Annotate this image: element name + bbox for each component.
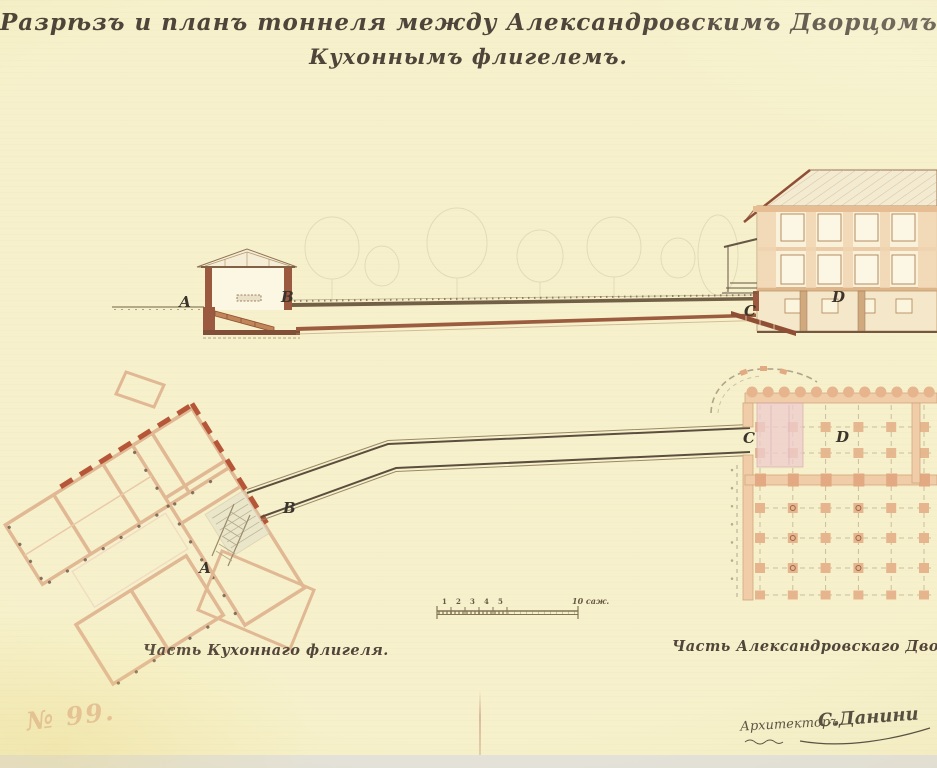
section-label-a: А [179, 293, 191, 311]
tunnel-section [292, 295, 756, 334]
caption-alexander-palace: Часть Александровскаго Дворца. [672, 638, 937, 655]
scan-edge-band [0, 755, 937, 768]
sheet-title-line2: Кухоннымъ флигелемъ. [0, 44, 937, 69]
scale-number-5: 5 [498, 597, 503, 606]
palace-plan [711, 366, 937, 600]
tunnel-plan [247, 425, 750, 521]
kitchen-wing-stub [116, 372, 164, 407]
paper-fold-crease [479, 690, 481, 756]
palace-stair-hall [757, 403, 803, 467]
scale-number-2: 2 [456, 597, 461, 606]
scale-number-3: 3 [470, 597, 475, 606]
scale-bar [437, 606, 578, 619]
section-view [112, 170, 937, 338]
plan-label-b: В [283, 499, 296, 517]
caption-kitchen-wing: Часть Кухоннаго флигеля. [143, 642, 389, 659]
drawing-sheet: Разрѣзъ и планъ тоннеля между Александро… [0, 0, 937, 768]
plan-label-c: С [743, 429, 755, 447]
signature-date-scribble [745, 740, 783, 744]
section-label-d: D [832, 288, 845, 306]
kitchen-wing-plan [3, 403, 307, 704]
plan-label-a: А [199, 559, 211, 577]
pencil-trees-sketch [305, 208, 738, 302]
palace-porch [722, 239, 757, 293]
sheet-title-line1: Разрѣзъ и планъ тоннеля между Александро… [0, 9, 937, 36]
section-label-c: С [744, 302, 756, 320]
scale-number-4: 4 [484, 597, 489, 606]
red-wall-accent-1 [61, 404, 193, 487]
scale-number-1: 1 [442, 597, 447, 606]
scale-unit-label: 10 саж. [572, 596, 609, 606]
plan-label-d: D [836, 428, 849, 446]
section-label-b: В [281, 288, 294, 306]
